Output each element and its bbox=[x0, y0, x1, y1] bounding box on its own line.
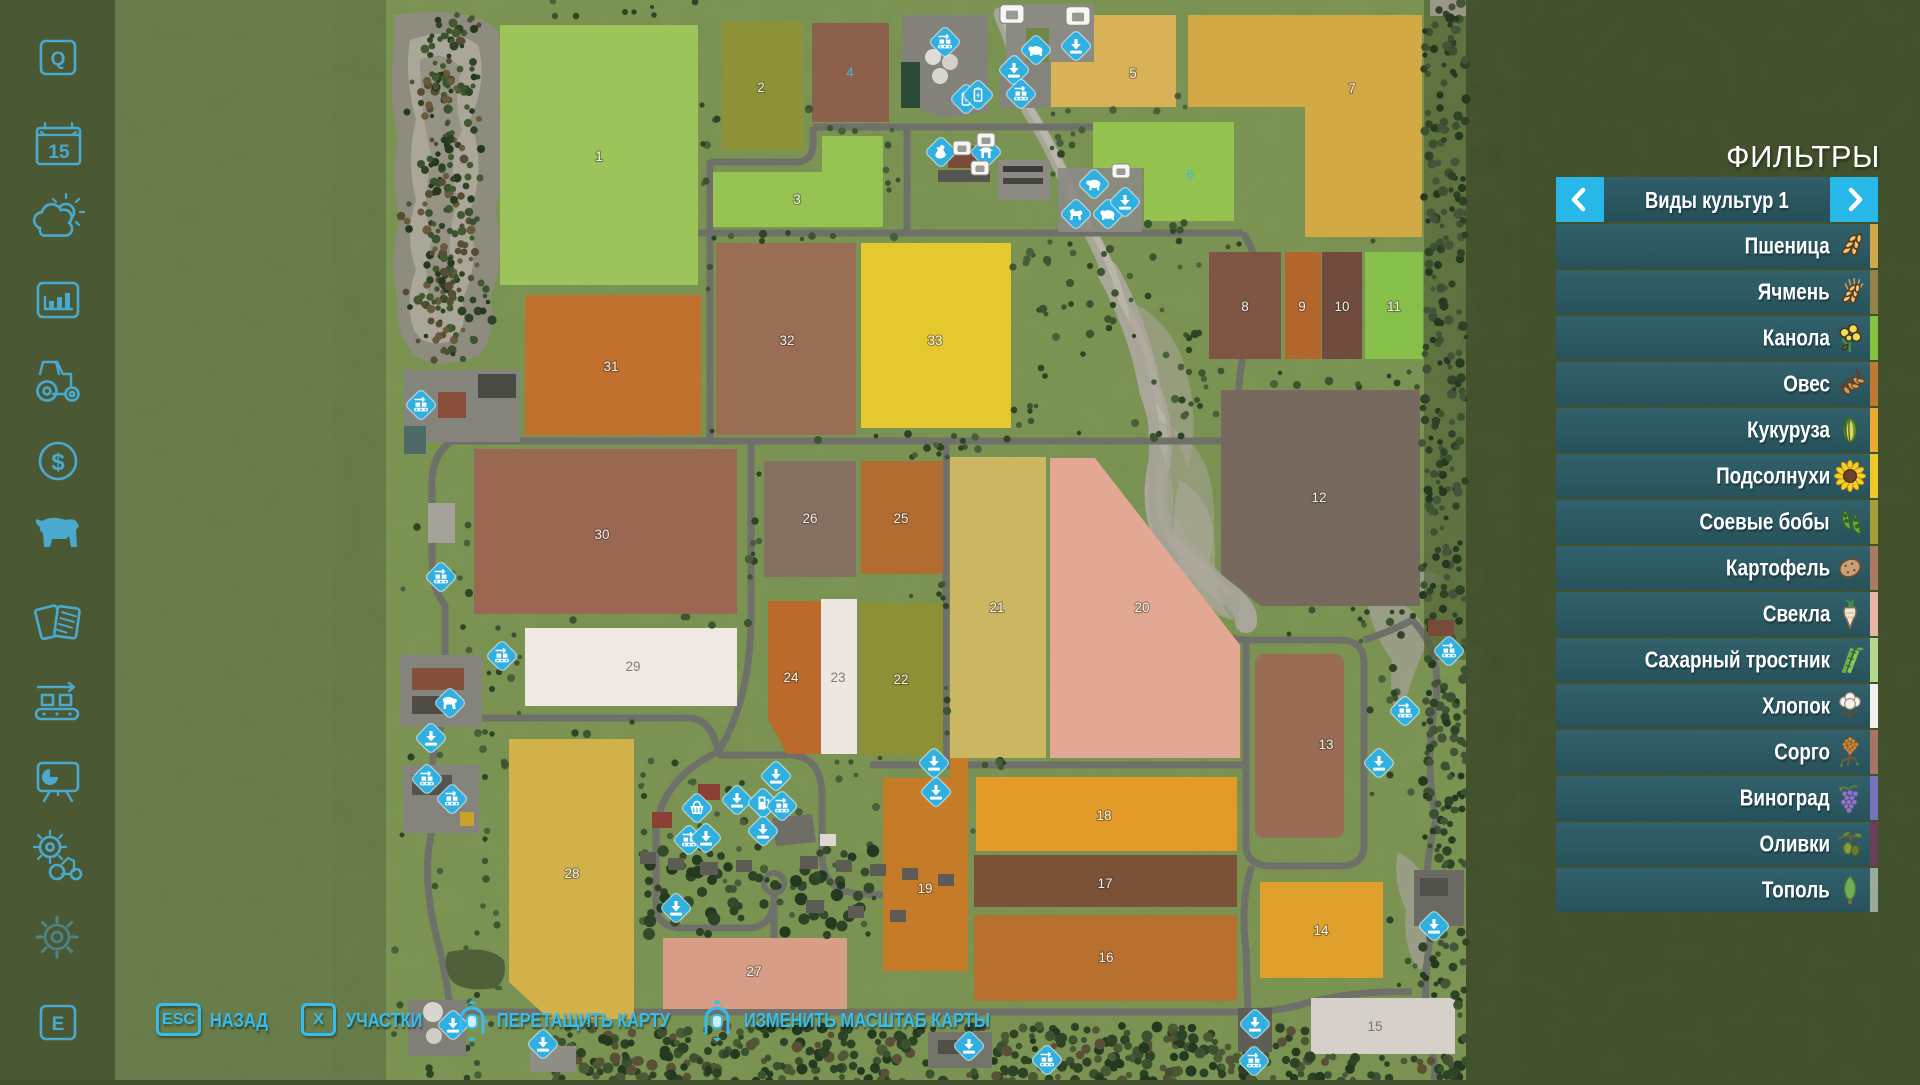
svg-text:E: E bbox=[52, 1014, 65, 1035]
svg-text:7: 7 bbox=[1348, 81, 1356, 96]
svg-text:20: 20 bbox=[1134, 600, 1149, 615]
svg-text:5: 5 bbox=[1129, 66, 1137, 81]
svg-text:16: 16 bbox=[1098, 950, 1113, 965]
svg-text:25: 25 bbox=[893, 511, 908, 526]
svg-text:31: 31 bbox=[603, 359, 618, 374]
svg-text:8: 8 bbox=[1241, 299, 1249, 314]
svg-text:26: 26 bbox=[802, 511, 817, 526]
svg-text:Q: Q bbox=[51, 49, 66, 70]
svg-text:11: 11 bbox=[1387, 299, 1401, 314]
svg-text:30: 30 bbox=[594, 527, 609, 542]
svg-text:15: 15 bbox=[1367, 1019, 1382, 1034]
svg-text:23: 23 bbox=[830, 670, 845, 685]
svg-text:10: 10 bbox=[1334, 299, 1349, 314]
svg-text:2: 2 bbox=[757, 80, 765, 95]
svg-text:$: $ bbox=[51, 449, 65, 476]
svg-text:17: 17 bbox=[1097, 876, 1112, 891]
svg-text:1: 1 bbox=[595, 149, 603, 164]
svg-text:15: 15 bbox=[48, 142, 70, 163]
svg-text:12: 12 bbox=[1311, 490, 1326, 505]
svg-text:27: 27 bbox=[746, 964, 761, 979]
svg-text:4: 4 bbox=[846, 65, 854, 80]
svg-text:6: 6 bbox=[1186, 167, 1194, 182]
svg-text:19: 19 bbox=[917, 881, 932, 896]
svg-text:24: 24 bbox=[783, 670, 799, 685]
svg-text:29: 29 bbox=[625, 659, 640, 674]
svg-text:13: 13 bbox=[1318, 737, 1333, 752]
svg-text:33: 33 bbox=[927, 333, 942, 348]
svg-text:21: 21 bbox=[989, 600, 1004, 615]
svg-text:3: 3 bbox=[793, 192, 801, 207]
svg-text:22: 22 bbox=[893, 672, 908, 687]
svg-text:9: 9 bbox=[1298, 299, 1306, 314]
svg-text:18: 18 bbox=[1096, 808, 1111, 823]
svg-text:14: 14 bbox=[1313, 923, 1329, 938]
svg-text:28: 28 bbox=[564, 866, 579, 881]
svg-text:32: 32 bbox=[779, 333, 794, 348]
